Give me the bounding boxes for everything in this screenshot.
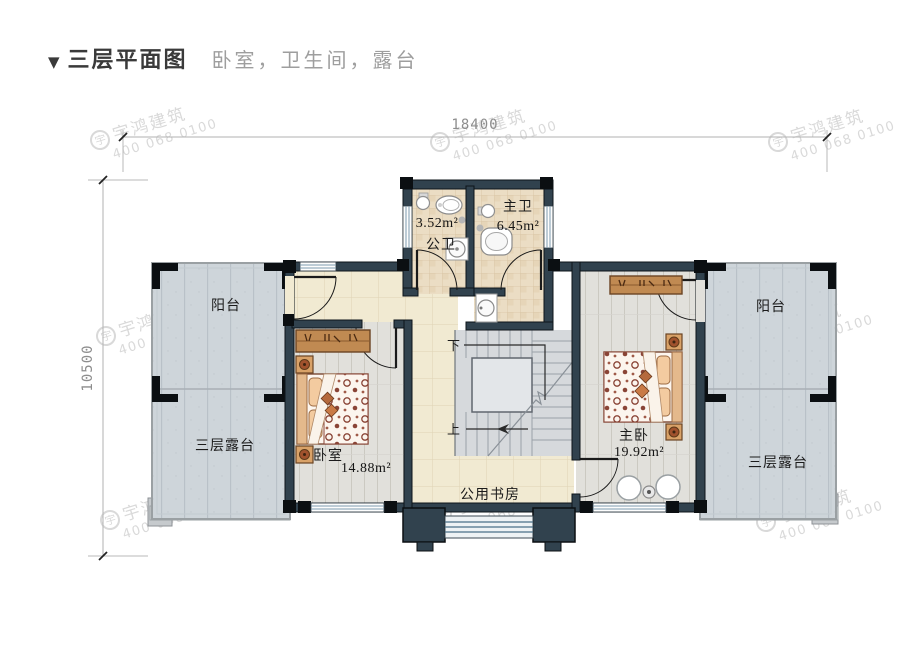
stairs-up-label: 上 xyxy=(447,423,460,438)
floor-plan-page: ▼ 三层平面图 卧室，卫生间，露台 xyxy=(0,0,910,649)
room-label-master-bedroom: 主卧 xyxy=(619,428,649,444)
pillow xyxy=(657,356,670,384)
chair-icon xyxy=(656,475,680,499)
area-master-bath: 6.45m² xyxy=(497,219,540,234)
sink-icon xyxy=(417,197,430,210)
left-terrace: 阳台 三层露台 xyxy=(148,263,290,526)
drain-icon xyxy=(459,217,466,224)
bedroom-bottom-window xyxy=(311,503,384,512)
nightstand xyxy=(666,424,682,440)
triangle-marker-icon: ▼ xyxy=(48,53,60,71)
stairs-down-label: 下 xyxy=(447,339,460,354)
toilet-icon xyxy=(436,196,462,214)
vanity-sink-icon xyxy=(476,294,497,322)
area-public-bath: 3.52m² xyxy=(416,216,459,231)
door-opening xyxy=(285,276,294,320)
room-label-terrace-right: 三层露台 xyxy=(748,455,808,471)
room-label-study: 公用书房 xyxy=(460,487,520,503)
bed xyxy=(604,352,682,422)
study-window xyxy=(445,516,533,538)
room-label-public-bath: 公卫 xyxy=(426,237,456,253)
bay-pillar xyxy=(403,508,445,542)
dimension-width-label: 18400 xyxy=(451,117,498,133)
bedroom-furniture xyxy=(296,330,370,463)
area-bedroom: 14.88m² xyxy=(341,461,391,476)
room-label-terrace-left: 三层露台 xyxy=(195,438,255,454)
stair-landing xyxy=(472,358,532,412)
plan-title: 三层平面图 xyxy=(68,42,188,74)
room-label-balcony-left: 阳台 xyxy=(211,298,241,314)
watermark: 宇 宇鸿建筑 400 068 0100 xyxy=(428,98,559,169)
bath-left-window xyxy=(403,206,412,248)
bath-right-window xyxy=(544,206,553,248)
drain-icon xyxy=(477,225,484,232)
room-label-balcony-right: 阳台 xyxy=(756,299,786,315)
hall-top-window xyxy=(300,262,336,271)
bed xyxy=(297,374,368,444)
nightstand xyxy=(666,334,682,350)
floor-plan-drawing: 宇 宇鸿建筑 400 068 0100 宇 宇鸿建筑 400 068 0100 … xyxy=(0,0,910,649)
nightstand xyxy=(296,446,313,463)
door-opening xyxy=(696,280,705,322)
plan-subtitle: 卧室，卫生间，露台 xyxy=(212,44,419,73)
bay-pillar xyxy=(533,508,575,542)
room-label-bedroom: 卧室 xyxy=(313,447,343,464)
nightstand xyxy=(296,356,313,373)
area-master-bedroom: 19.92m² xyxy=(614,445,664,460)
dimension-height-label: 10500 xyxy=(80,344,96,391)
room-label-master-bath: 主卫 xyxy=(503,199,533,215)
page-title: ▼ 三层平面图 卧室，卫生间，露台 xyxy=(48,42,419,74)
master-bottom-window xyxy=(593,503,666,512)
sink-icon xyxy=(482,205,495,218)
wardrobe xyxy=(610,276,682,294)
watermark: 宇 宇鸿建筑 400 068 0100 xyxy=(88,96,219,167)
wardrobe xyxy=(296,330,370,352)
chair-icon xyxy=(617,476,641,500)
watermark: 宇 宇鸿建筑 400 068 0100 xyxy=(766,98,897,169)
right-terrace: 阳台 三层露台 xyxy=(700,263,838,524)
